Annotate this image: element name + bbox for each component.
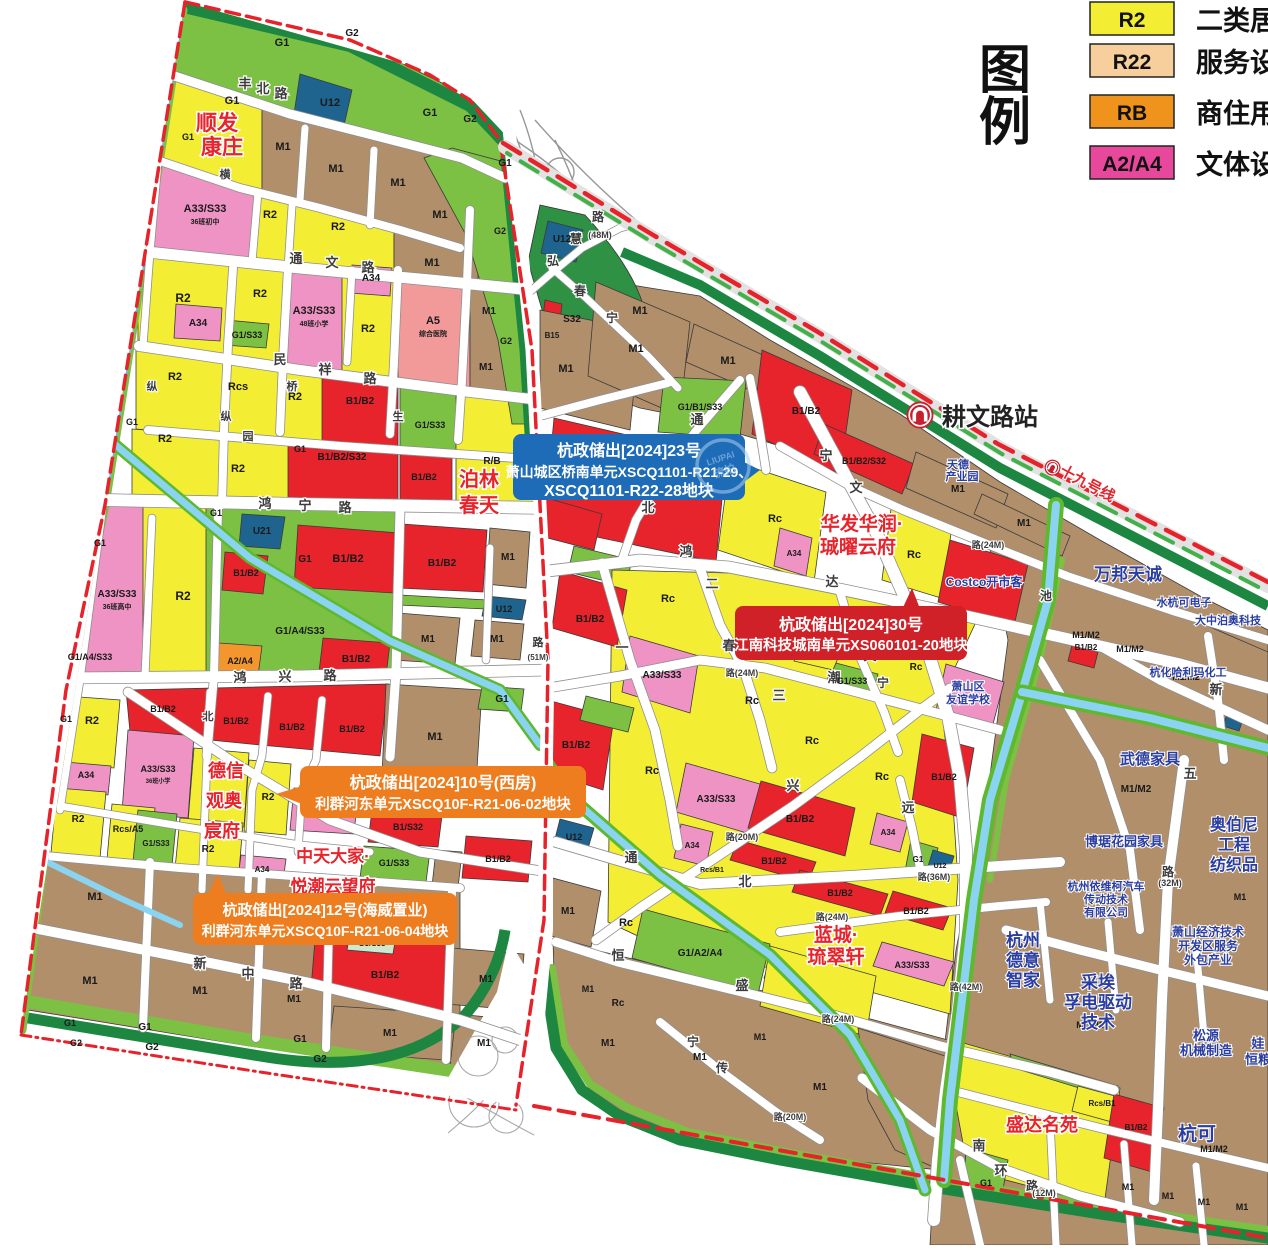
svg-text:R/B: R/B — [483, 456, 500, 467]
svg-text:M1: M1 — [1162, 1191, 1175, 1201]
svg-text:R2: R2 — [175, 589, 191, 603]
svg-text:宸府: 宸府 — [204, 820, 240, 841]
svg-text:杭政储出[2024]30号: 杭政储出[2024]30号 — [779, 615, 923, 634]
svg-text:通: 通 — [624, 850, 637, 865]
svg-text:一: 一 — [615, 640, 628, 655]
svg-text:杭州: 杭州 — [1006, 930, 1040, 950]
svg-text:德意: 德意 — [1006, 950, 1040, 970]
svg-text:B1/B2: B1/B2 — [342, 654, 371, 665]
svg-text:B1/B2/S32: B1/B2/S32 — [842, 456, 886, 466]
svg-text:B1/B2: B1/B2 — [827, 888, 853, 898]
svg-text:丰: 丰 — [238, 76, 251, 91]
svg-text:G1: G1 — [126, 417, 138, 427]
svg-text:路: 路 — [592, 209, 605, 224]
svg-text:兴: 兴 — [786, 778, 799, 793]
svg-text:R2: R2 — [1119, 9, 1146, 32]
svg-text:路(24M): 路(24M) — [972, 539, 1005, 550]
svg-text:M1: M1 — [383, 1028, 397, 1039]
svg-text:G1/S33: G1/S33 — [142, 839, 170, 848]
svg-text:R2: R2 — [361, 323, 375, 335]
svg-text:M1: M1 — [477, 1038, 491, 1049]
svg-text:宁: 宁 — [606, 310, 618, 325]
svg-text:工程: 工程 — [1218, 836, 1250, 854]
svg-text:祥: 祥 — [318, 362, 331, 377]
svg-text:江南科技城南单元XS060101-20地块: 江南科技城南单元XS060101-20地块 — [734, 636, 968, 654]
svg-text:智家: 智家 — [1006, 970, 1040, 990]
svg-text:R2: R2 — [175, 291, 191, 305]
svg-text:例: 例 — [979, 94, 1031, 152]
svg-text:路: 路 — [363, 371, 377, 386]
svg-text:M1: M1 — [1017, 518, 1031, 529]
svg-text:R22: R22 — [1113, 51, 1152, 74]
svg-text:南: 南 — [972, 1138, 985, 1153]
svg-text:G1: G1 — [294, 444, 306, 454]
svg-text:M1: M1 — [328, 163, 343, 175]
svg-text:通: 通 — [289, 251, 302, 266]
svg-text:慧: 慧 — [570, 231, 582, 246]
svg-text:B1/B2: B1/B2 — [1125, 1123, 1148, 1132]
svg-text:春: 春 — [573, 283, 587, 298]
svg-text:万邦天诚: 万邦天诚 — [1093, 564, 1162, 584]
svg-text:泊林: 泊林 — [459, 467, 499, 491]
svg-text:M1: M1 — [424, 257, 439, 269]
svg-text:Rcs/A5: Rcs/A5 — [113, 824, 144, 834]
svg-text:G1: G1 — [498, 158, 512, 169]
svg-text:达: 达 — [825, 574, 838, 589]
svg-text:R2: R2 — [331, 221, 345, 233]
svg-text:G1: G1 — [94, 538, 106, 548]
svg-text:G1/A2/A4: G1/A2/A4 — [678, 948, 723, 959]
svg-text:杭政储出[2024]10号(西房): 杭政储出[2024]10号(西房) — [350, 773, 537, 792]
svg-text:B15: B15 — [545, 331, 560, 340]
svg-text:北: 北 — [203, 709, 214, 723]
svg-text:孚电驱动: 孚电驱动 — [1064, 992, 1132, 1012]
svg-text:北: 北 — [738, 874, 751, 889]
svg-text:路: 路 — [338, 500, 352, 515]
svg-text:路(24M): 路(24M) — [822, 1013, 855, 1024]
svg-text:M1: M1 — [951, 484, 965, 495]
svg-text:A2/A4: A2/A4 — [1102, 153, 1162, 176]
svg-text:RB: RB — [1117, 102, 1147, 125]
svg-text:M1: M1 — [287, 994, 301, 1005]
svg-text:友谊学校: 友谊学校 — [946, 692, 991, 706]
svg-text:A2/A4: A2/A4 — [227, 656, 253, 666]
svg-text:B1/B2: B1/B2 — [346, 396, 375, 407]
svg-text:A34: A34 — [362, 273, 381, 284]
svg-text:M1: M1 — [558, 363, 573, 375]
svg-text:文体设施: 文体设施 — [1196, 149, 1268, 180]
svg-text:文: 文 — [849, 480, 863, 495]
svg-text:B1/B2: B1/B2 — [233, 568, 259, 578]
svg-text:顺发: 顺发 — [196, 111, 239, 135]
svg-text:R2: R2 — [202, 844, 215, 855]
svg-text:G1: G1 — [210, 508, 222, 518]
svg-text:盛: 盛 — [735, 978, 748, 993]
svg-text:技术: 技术 — [1081, 1012, 1115, 1032]
svg-text:M1: M1 — [693, 1052, 707, 1063]
svg-text:U12: U12 — [553, 234, 572, 245]
svg-text:A34: A34 — [881, 828, 896, 837]
svg-text:U12: U12 — [320, 97, 340, 109]
svg-text:中天大家·: 中天大家· — [296, 846, 370, 866]
svg-text:路(36M): 路(36M) — [918, 871, 951, 882]
svg-text:U12: U12 — [934, 863, 947, 870]
svg-text:G1: G1 — [182, 132, 194, 142]
svg-text:纵: 纵 — [221, 409, 232, 423]
svg-text:R2: R2 — [158, 433, 172, 445]
svg-text:A33/S33: A33/S33 — [184, 203, 227, 215]
svg-text:B1/B2/S32: B1/B2/S32 — [318, 452, 367, 463]
svg-text:松源: 松源 — [1193, 1028, 1219, 1043]
svg-text:德信: 德信 — [208, 760, 244, 781]
svg-text:R2: R2 — [168, 371, 182, 383]
svg-text:M1: M1 — [813, 1082, 827, 1093]
svg-text:路: 路 — [1162, 864, 1175, 879]
svg-text:Rc: Rc — [612, 998, 625, 1009]
svg-text:G1: G1 — [913, 855, 924, 864]
svg-text:A34: A34 — [255, 865, 270, 874]
svg-text:G1: G1 — [64, 1018, 76, 1028]
svg-text:北: 北 — [641, 500, 654, 515]
svg-text:服务设施: 服务设施 — [1196, 48, 1268, 78]
svg-text:B1/B2: B1/B2 — [339, 724, 365, 734]
svg-text:采埃: 采埃 — [1080, 972, 1116, 992]
svg-text:宁: 宁 — [819, 448, 832, 463]
svg-text:康庄: 康庄 — [201, 135, 243, 159]
svg-text:五: 五 — [1183, 766, 1196, 781]
svg-text:恒粮: 恒粮 — [1245, 1052, 1268, 1067]
svg-text:娃: 娃 — [1250, 1036, 1264, 1051]
svg-text:M1: M1 — [479, 362, 493, 373]
svg-text:G1/S33: G1/S33 — [379, 858, 410, 868]
svg-text:Costco开市客: Costco开市客 — [946, 574, 1024, 589]
svg-text:M1: M1 — [628, 343, 643, 355]
svg-text:路(24M): 路(24M) — [816, 911, 849, 922]
svg-text:U12: U12 — [566, 832, 583, 842]
svg-text:春天: 春天 — [458, 493, 500, 517]
svg-text:宁: 宁 — [877, 675, 889, 690]
svg-text:B1/B2: B1/B2 — [411, 472, 437, 482]
svg-text:宁: 宁 — [298, 498, 311, 513]
svg-text:36班高中: 36班高中 — [103, 602, 132, 611]
svg-text:商住用地: 商住用地 — [1196, 98, 1268, 129]
svg-text:Rcs: Rcs — [228, 381, 248, 393]
svg-text:蓝城·: 蓝城· — [814, 923, 858, 946]
svg-text:XSCQ1101-R22-28地块: XSCQ1101-R22-28地块 — [544, 481, 715, 500]
svg-text:(51M): (51M) — [528, 653, 549, 662]
svg-text:M1: M1 — [192, 985, 207, 997]
svg-text:路: 路 — [289, 976, 303, 991]
svg-text:池: 池 — [1040, 588, 1052, 603]
svg-text:Rc: Rc — [745, 695, 759, 707]
svg-text:B1/B2: B1/B2 — [223, 716, 249, 726]
svg-text:外包产业: 外包产业 — [1184, 952, 1232, 967]
svg-text:G2: G2 — [70, 1038, 82, 1048]
svg-text:M1: M1 — [275, 141, 290, 153]
svg-text:二类居住: 二类居住 — [1196, 5, 1268, 36]
svg-text:M1: M1 — [561, 906, 575, 917]
svg-text:M1: M1 — [390, 177, 405, 189]
svg-text:M1: M1 — [632, 305, 647, 317]
svg-text:有限公司: 有限公司 — [1084, 905, 1128, 919]
svg-text:传: 传 — [715, 1060, 728, 1075]
svg-text:G1: G1 — [423, 107, 438, 119]
svg-text:R2: R2 — [262, 792, 275, 803]
svg-text:路(20M): 路(20M) — [726, 831, 759, 842]
svg-text:U12: U12 — [496, 604, 513, 614]
svg-text:36班初中: 36班初中 — [191, 217, 220, 226]
svg-text:B1/B2: B1/B2 — [786, 814, 815, 825]
svg-text:新: 新 — [1209, 682, 1222, 697]
svg-text:新: 新 — [193, 956, 206, 971]
svg-text:G1: G1 — [60, 714, 72, 724]
svg-text:M1: M1 — [427, 731, 442, 743]
svg-text:G2: G2 — [313, 1054, 327, 1065]
svg-text:M1/M2: M1/M2 — [1121, 784, 1152, 795]
svg-text:二: 二 — [705, 576, 718, 591]
svg-text:A33/S33: A33/S33 — [98, 589, 137, 600]
svg-text:水杭可电子: 水杭可电子 — [1157, 595, 1212, 609]
svg-text:B1/B2: B1/B2 — [428, 558, 457, 569]
svg-text:综合医院: 综合医院 — [419, 329, 447, 338]
svg-text:R2: R2 — [85, 715, 99, 727]
svg-text:弘: 弘 — [547, 254, 559, 268]
svg-text:Rc: Rc — [805, 735, 819, 747]
svg-text:B1/B2: B1/B2 — [1075, 643, 1098, 652]
svg-text:B1/B2: B1/B2 — [903, 906, 929, 916]
svg-text:A33/S33: A33/S33 — [697, 794, 736, 805]
svg-text:M1: M1 — [482, 306, 496, 317]
svg-text:鸿: 鸿 — [233, 670, 246, 685]
svg-text:A5: A5 — [426, 315, 440, 327]
svg-text:Rc: Rc — [619, 917, 633, 929]
svg-text:开发区服务: 开发区服务 — [1178, 938, 1239, 953]
svg-text:三: 三 — [772, 688, 785, 703]
svg-text:横: 横 — [220, 167, 232, 181]
svg-text:Rc: Rc — [875, 771, 889, 783]
svg-text:G1/S33: G1/S33 — [837, 676, 868, 686]
svg-text:琉翠轩: 琉翠轩 — [807, 945, 864, 968]
svg-text:M1: M1 — [1234, 892, 1247, 902]
svg-text:纵: 纵 — [147, 379, 158, 393]
svg-text:G1: G1 — [275, 37, 290, 49]
svg-text:A33/S33: A33/S33 — [140, 764, 175, 774]
svg-text:M1: M1 — [501, 552, 515, 563]
svg-text:路: 路 — [323, 668, 337, 683]
svg-text:环: 环 — [994, 1163, 1007, 1178]
svg-text:G1: G1 — [293, 1034, 307, 1045]
svg-text:大中泊奥科技: 大中泊奥科技 — [1195, 613, 1262, 627]
svg-text:G1/A4/S33: G1/A4/S33 — [68, 652, 113, 662]
svg-text:M1: M1 — [720, 355, 735, 367]
svg-text:路: 路 — [533, 635, 545, 649]
svg-text:博琚花园家具: 博琚花园家具 — [1085, 834, 1163, 849]
svg-text:36班小学: 36班小学 — [146, 777, 171, 785]
svg-text:杭政储出[2024]12号(海威置业): 杭政储出[2024]12号(海威置业) — [222, 901, 427, 919]
svg-text:G2: G2 — [463, 114, 477, 125]
svg-text:R2: R2 — [72, 814, 85, 825]
svg-text:机械制造: 机械制造 — [1180, 1043, 1233, 1058]
svg-text:M1: M1 — [490, 634, 504, 645]
svg-text:B1/B2: B1/B2 — [931, 772, 957, 782]
svg-text:B1/B2: B1/B2 — [150, 704, 176, 714]
svg-text:Rc: Rc — [768, 513, 782, 525]
svg-text:路(42M): 路(42M) — [950, 981, 983, 992]
svg-text:杭可: 杭可 — [1178, 1122, 1216, 1145]
svg-text:路(24M): 路(24M) — [726, 667, 759, 678]
svg-text:R2: R2 — [231, 463, 245, 475]
svg-text:珹曜云府: 珹曜云府 — [820, 535, 896, 558]
svg-text:A34: A34 — [189, 318, 208, 329]
svg-text:M1: M1 — [582, 984, 595, 994]
svg-text:杭政储出[2024]23号: 杭政储出[2024]23号 — [557, 441, 701, 460]
svg-text:B1/S32: B1/S32 — [393, 822, 423, 832]
svg-text:(12M): (12M) — [1032, 1188, 1056, 1198]
svg-text:B1/B2: B1/B2 — [371, 970, 400, 981]
svg-text:G1: G1 — [225, 95, 240, 107]
svg-text:M1: M1 — [1122, 1182, 1135, 1192]
svg-text:G1/S33: G1/S33 — [415, 420, 446, 430]
svg-text:G1/A4/S33: G1/A4/S33 — [275, 626, 325, 637]
svg-text:B1/B2: B1/B2 — [332, 553, 363, 565]
svg-text:华发华润·: 华发华润· — [821, 512, 903, 535]
svg-text:(32M): (32M) — [1158, 878, 1182, 888]
svg-text:杭化哈利玛化工: 杭化哈利玛化工 — [1150, 665, 1227, 679]
svg-text:G2: G2 — [345, 28, 359, 39]
svg-text:萧山区: 萧山区 — [952, 679, 985, 693]
svg-text:M1: M1 — [1198, 1197, 1211, 1207]
svg-text:(48M): (48M) — [588, 230, 612, 240]
svg-text:武德家具: 武德家具 — [1120, 750, 1180, 768]
svg-text:S32: S32 — [563, 314, 581, 325]
svg-text:R2: R2 — [288, 391, 302, 403]
svg-text:耕文路站: 耕文路站 — [942, 403, 1038, 431]
svg-text:R2: R2 — [263, 209, 277, 221]
svg-text:M1: M1 — [479, 974, 493, 985]
svg-text:48班小学: 48班小学 — [300, 319, 329, 328]
svg-text:A33/S33: A33/S33 — [894, 960, 929, 970]
svg-text:M1/M2: M1/M2 — [1072, 630, 1100, 640]
svg-text:M1: M1 — [1236, 1202, 1249, 1212]
svg-text:鸿: 鸿 — [679, 544, 692, 559]
svg-text:生: 生 — [393, 409, 404, 423]
svg-text:B1/B2: B1/B2 — [279, 722, 305, 732]
svg-text:M1: M1 — [82, 975, 97, 987]
svg-text:G2: G2 — [500, 336, 512, 346]
svg-text:北: 北 — [256, 81, 269, 96]
svg-text:M1: M1 — [87, 891, 102, 903]
svg-text:传动技术: 传动技术 — [1083, 892, 1128, 906]
svg-text:G1: G1 — [980, 1178, 992, 1188]
svg-text:M1: M1 — [421, 634, 435, 645]
svg-text:M1: M1 — [432, 209, 447, 221]
svg-text:恒: 恒 — [611, 948, 624, 963]
svg-text:鸿: 鸿 — [258, 496, 271, 511]
svg-text:M1/M2: M1/M2 — [1200, 1144, 1228, 1154]
svg-text:B1/B2: B1/B2 — [761, 856, 787, 866]
svg-text:通: 通 — [690, 412, 703, 427]
svg-text:Rc: Rc — [645, 765, 659, 777]
svg-text:远: 远 — [901, 800, 914, 815]
svg-text:杭州依维柯汽车: 杭州依维柯汽车 — [1068, 879, 1145, 893]
svg-text:奥伯尼: 奥伯尼 — [1210, 815, 1258, 834]
svg-text:A34: A34 — [78, 770, 95, 780]
svg-text:G1: G1 — [495, 694, 509, 705]
svg-text:B1/B2: B1/B2 — [576, 614, 605, 625]
svg-text:观奥: 观奥 — [206, 790, 243, 811]
svg-text:宁: 宁 — [687, 1034, 699, 1049]
svg-text:G2: G2 — [494, 226, 506, 236]
svg-text:天德: 天德 — [947, 457, 969, 471]
svg-text:G1: G1 — [298, 554, 312, 565]
svg-text:U21: U21 — [253, 526, 272, 537]
svg-text:M1/M2: M1/M2 — [1116, 644, 1144, 654]
svg-text:G2: G2 — [145, 1042, 159, 1053]
svg-text:R2: R2 — [253, 288, 267, 300]
svg-text:路(20M): 路(20M) — [774, 1111, 807, 1122]
svg-text:Rc: Rc — [910, 662, 923, 673]
svg-text:萧山经济技术: 萧山经济技术 — [1172, 924, 1244, 939]
svg-text:A34: A34 — [787, 549, 802, 558]
svg-text:路: 路 — [274, 86, 288, 101]
svg-text:B1/B2: B1/B2 — [792, 406, 821, 417]
svg-text:B1/B2: B1/B2 — [562, 740, 591, 751]
svg-text:兴: 兴 — [278, 669, 291, 684]
svg-text:中: 中 — [241, 966, 254, 981]
svg-text:A33/S33: A33/S33 — [293, 305, 336, 317]
svg-text:A33/S33: A33/S33 — [643, 670, 682, 681]
svg-text:利群河东单元XSCQ10F-R21-06-04地块: 利群河东单元XSCQ10F-R21-06-04地块 — [202, 923, 450, 939]
svg-text:园: 园 — [243, 430, 254, 443]
svg-text:图: 图 — [979, 42, 1031, 100]
svg-text:产业园: 产业园 — [946, 469, 979, 483]
svg-text:Rcs/B1: Rcs/B1 — [700, 867, 724, 874]
svg-text:G1/B1/S33: G1/B1/S33 — [678, 402, 723, 412]
svg-text:G1/S33: G1/S33 — [232, 330, 263, 340]
svg-text:B1/B2: B1/B2 — [485, 854, 511, 864]
svg-text:利群河东单元XSCQ10F-R21-06-02地块: 利群河东单元XSCQ10F-R21-06-02地块 — [315, 795, 571, 813]
svg-text:Rc: Rc — [907, 549, 921, 561]
svg-text:民: 民 — [273, 352, 286, 367]
svg-text:M1: M1 — [601, 1038, 615, 1049]
svg-text:A34: A34 — [685, 841, 700, 850]
svg-text:Rcs/B1: Rcs/B1 — [1088, 1099, 1116, 1108]
svg-text:盛达名苑: 盛达名苑 — [1006, 1114, 1078, 1135]
svg-text:G1: G1 — [138, 1022, 152, 1033]
svg-text:Rc: Rc — [661, 593, 675, 605]
svg-text:M1: M1 — [754, 1032, 767, 1042]
svg-text:纺织品: 纺织品 — [1210, 855, 1258, 874]
svg-text:文: 文 — [325, 255, 339, 270]
